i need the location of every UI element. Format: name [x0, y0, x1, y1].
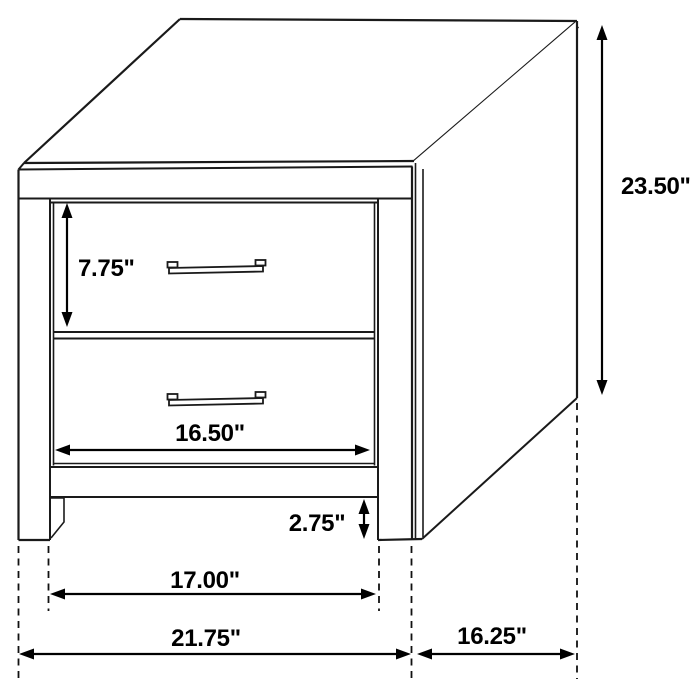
arrowhead-right-icon [361, 589, 376, 600]
handle-left-post [168, 394, 178, 400]
bottom-drawer-handle [168, 392, 266, 406]
arrowhead-down-icon [359, 524, 370, 539]
nightstand-dimension-diagram: 23.50" 7.75" 16.50" 2.75" 17 [0, 0, 700, 700]
handle-bar [169, 266, 263, 274]
arrowhead-right-icon [396, 649, 411, 660]
dim-foot-height: 2.75" [289, 499, 370, 539]
left-leg-inner-face [50, 498, 64, 538]
dim-drawer-width: 16.50" [55, 420, 370, 456]
arrowhead-up-icon [597, 25, 608, 40]
dim-overall-height: 23.50" [597, 25, 691, 395]
dimension-label-overall-depth: 16.25" [457, 623, 527, 650]
front-legs [19, 498, 423, 540]
top-front-edge-lower [19, 167, 413, 170]
dimension-label-overall-height: 23.50" [621, 173, 691, 200]
arrowhead-right-icon [355, 445, 370, 456]
dimension-label-foot-height: 2.75" [289, 510, 346, 537]
dim-top-drawer-height: 7.75" [62, 203, 135, 327]
arrowhead-down-icon [597, 380, 608, 395]
dimension-label-between-legs-width: 17.00" [170, 567, 240, 594]
handle-bar [169, 398, 263, 406]
arrowhead-left-icon [55, 445, 70, 456]
dimension-label-overall-width: 21.75" [171, 625, 241, 652]
dim-between-legs-width: 17.00" [50, 567, 376, 600]
dim-overall-depth: 16.25" [417, 623, 575, 660]
handle-right-post [256, 392, 266, 398]
top-drawer-handle [168, 260, 266, 274]
arrowhead-left-icon [50, 589, 65, 600]
right-leg-bottom-edge [378, 539, 422, 540]
arrowhead-left-icon [417, 649, 432, 660]
arrowhead-down-icon [62, 312, 73, 327]
arrowhead-left-icon [19, 649, 34, 660]
arrowhead-right-icon [560, 649, 575, 660]
cabinet-front-frame [19, 167, 413, 541]
handle-right-post [256, 260, 266, 266]
arrowhead-up-icon [62, 203, 73, 218]
dim-overall-width: 21.75" [19, 625, 411, 660]
arrowhead-up-icon [359, 499, 370, 514]
handle-left-post [168, 262, 178, 268]
dimension-label-top-drawer-height: 7.75" [78, 255, 135, 282]
dimension-label-drawer-width: 16.50" [175, 420, 245, 447]
diagram-canvas: 23.50" 7.75" 16.50" 2.75" 17 [0, 0, 700, 700]
